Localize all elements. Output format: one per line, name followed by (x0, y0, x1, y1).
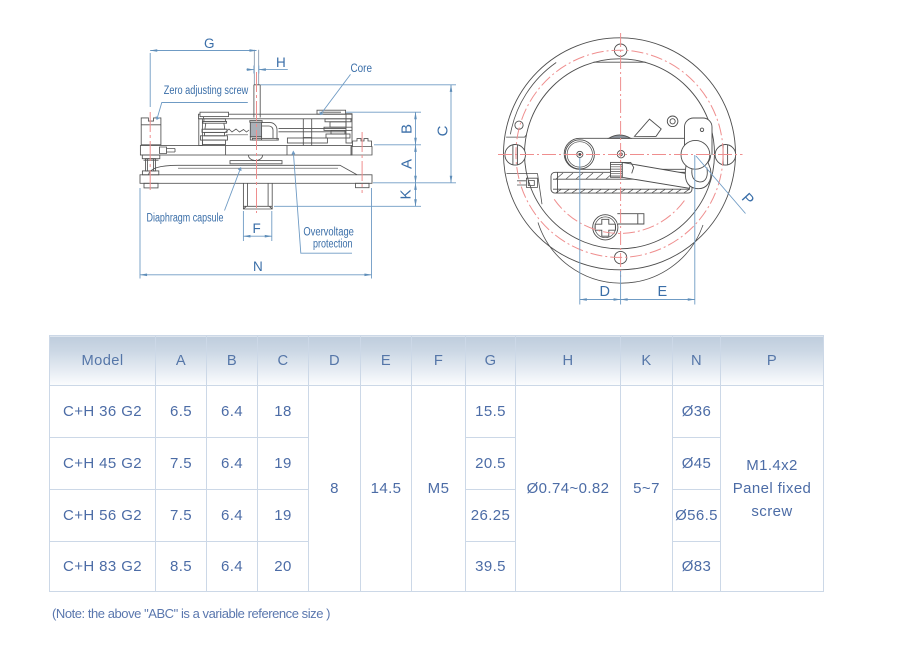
svg-text:N: N (253, 259, 263, 274)
svg-text:H: H (276, 55, 286, 70)
svg-text:protection: protection (313, 238, 353, 250)
svg-text:A: A (399, 159, 416, 169)
svg-text:Zero adjusting screw: Zero adjusting screw (164, 85, 249, 97)
svg-text:G: G (204, 36, 215, 51)
svg-text:K: K (398, 189, 415, 199)
svg-text:E: E (658, 284, 668, 300)
svg-text:F: F (253, 221, 261, 236)
svg-text:C: C (435, 125, 452, 136)
svg-text:D: D (600, 284, 610, 300)
svg-text:Overvoltage: Overvoltage (303, 227, 354, 239)
svg-text:Core: Core (351, 63, 373, 75)
svg-text:B: B (399, 124, 416, 134)
svg-text:P: P (738, 190, 757, 209)
svg-text:Diaphragm capsule: Diaphragm capsule (147, 213, 224, 225)
